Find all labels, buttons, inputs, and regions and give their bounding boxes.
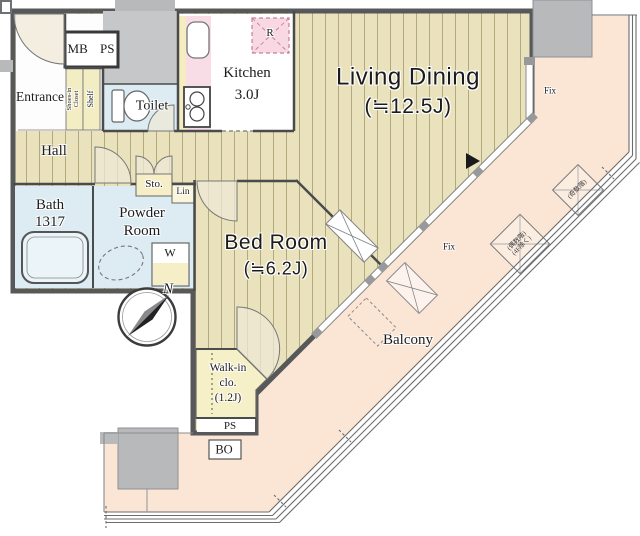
fix-label-lower: Fix xyxy=(443,242,455,251)
bath-size: 1317 xyxy=(35,215,65,231)
top-notch xyxy=(115,0,175,11)
walkin-label-3: (1.2J) xyxy=(215,392,242,404)
floor-plan-drawing xyxy=(0,0,640,536)
corner-box xyxy=(1,1,11,13)
pipe-space-label: PS xyxy=(224,421,236,433)
pillar-bottom xyxy=(118,428,178,489)
left-stub xyxy=(0,60,13,72)
walkin-label-1: Walk-in xyxy=(210,362,247,374)
pillar-stub xyxy=(100,432,118,444)
compass-north-label: N xyxy=(163,282,173,298)
balcony-label: Balcony xyxy=(383,333,433,349)
powder-room-label-2: Room xyxy=(124,224,161,240)
linen-label: Lin xyxy=(176,188,189,198)
bed-room-size: (≒6.2J) xyxy=(244,260,309,279)
washer-label: W xyxy=(164,247,175,260)
toilet-label: Toilet xyxy=(136,100,168,115)
shelf-label: Shelf xyxy=(87,91,95,108)
powder-room-label-1: Powder xyxy=(119,206,165,222)
bo-label: BO xyxy=(215,443,232,456)
kitchen-sink xyxy=(187,22,209,58)
mb-ps-label: MB PS xyxy=(68,42,115,56)
hall-label: Hall xyxy=(41,144,67,160)
bathtub xyxy=(22,232,88,283)
shoes-closet-label: Shoes-in Closet xyxy=(67,88,81,111)
floor-plan: MB PS Entrance Shoes-in Closet Shelf Toi… xyxy=(0,0,640,536)
storage-label: Sto. xyxy=(145,179,162,191)
entrance-label: Entrance xyxy=(16,90,64,104)
fix-window-upper xyxy=(526,64,533,118)
refrigerator-label: R xyxy=(266,28,273,40)
living-dining-size: (≒12.5J) xyxy=(365,96,452,118)
living-dining-label: Living Dining xyxy=(336,64,480,89)
kitchen-size: 3.0J xyxy=(235,88,260,104)
pillar-top-right xyxy=(533,0,592,57)
toilet-tank xyxy=(112,90,124,122)
bath-label: Bath xyxy=(36,198,64,214)
walkin-label-2: clo. xyxy=(220,377,237,389)
bed-room-label: Bed Room xyxy=(224,232,327,254)
fix-label-upper: Fix xyxy=(544,86,556,95)
kitchen-label: Kitchen xyxy=(223,66,270,82)
